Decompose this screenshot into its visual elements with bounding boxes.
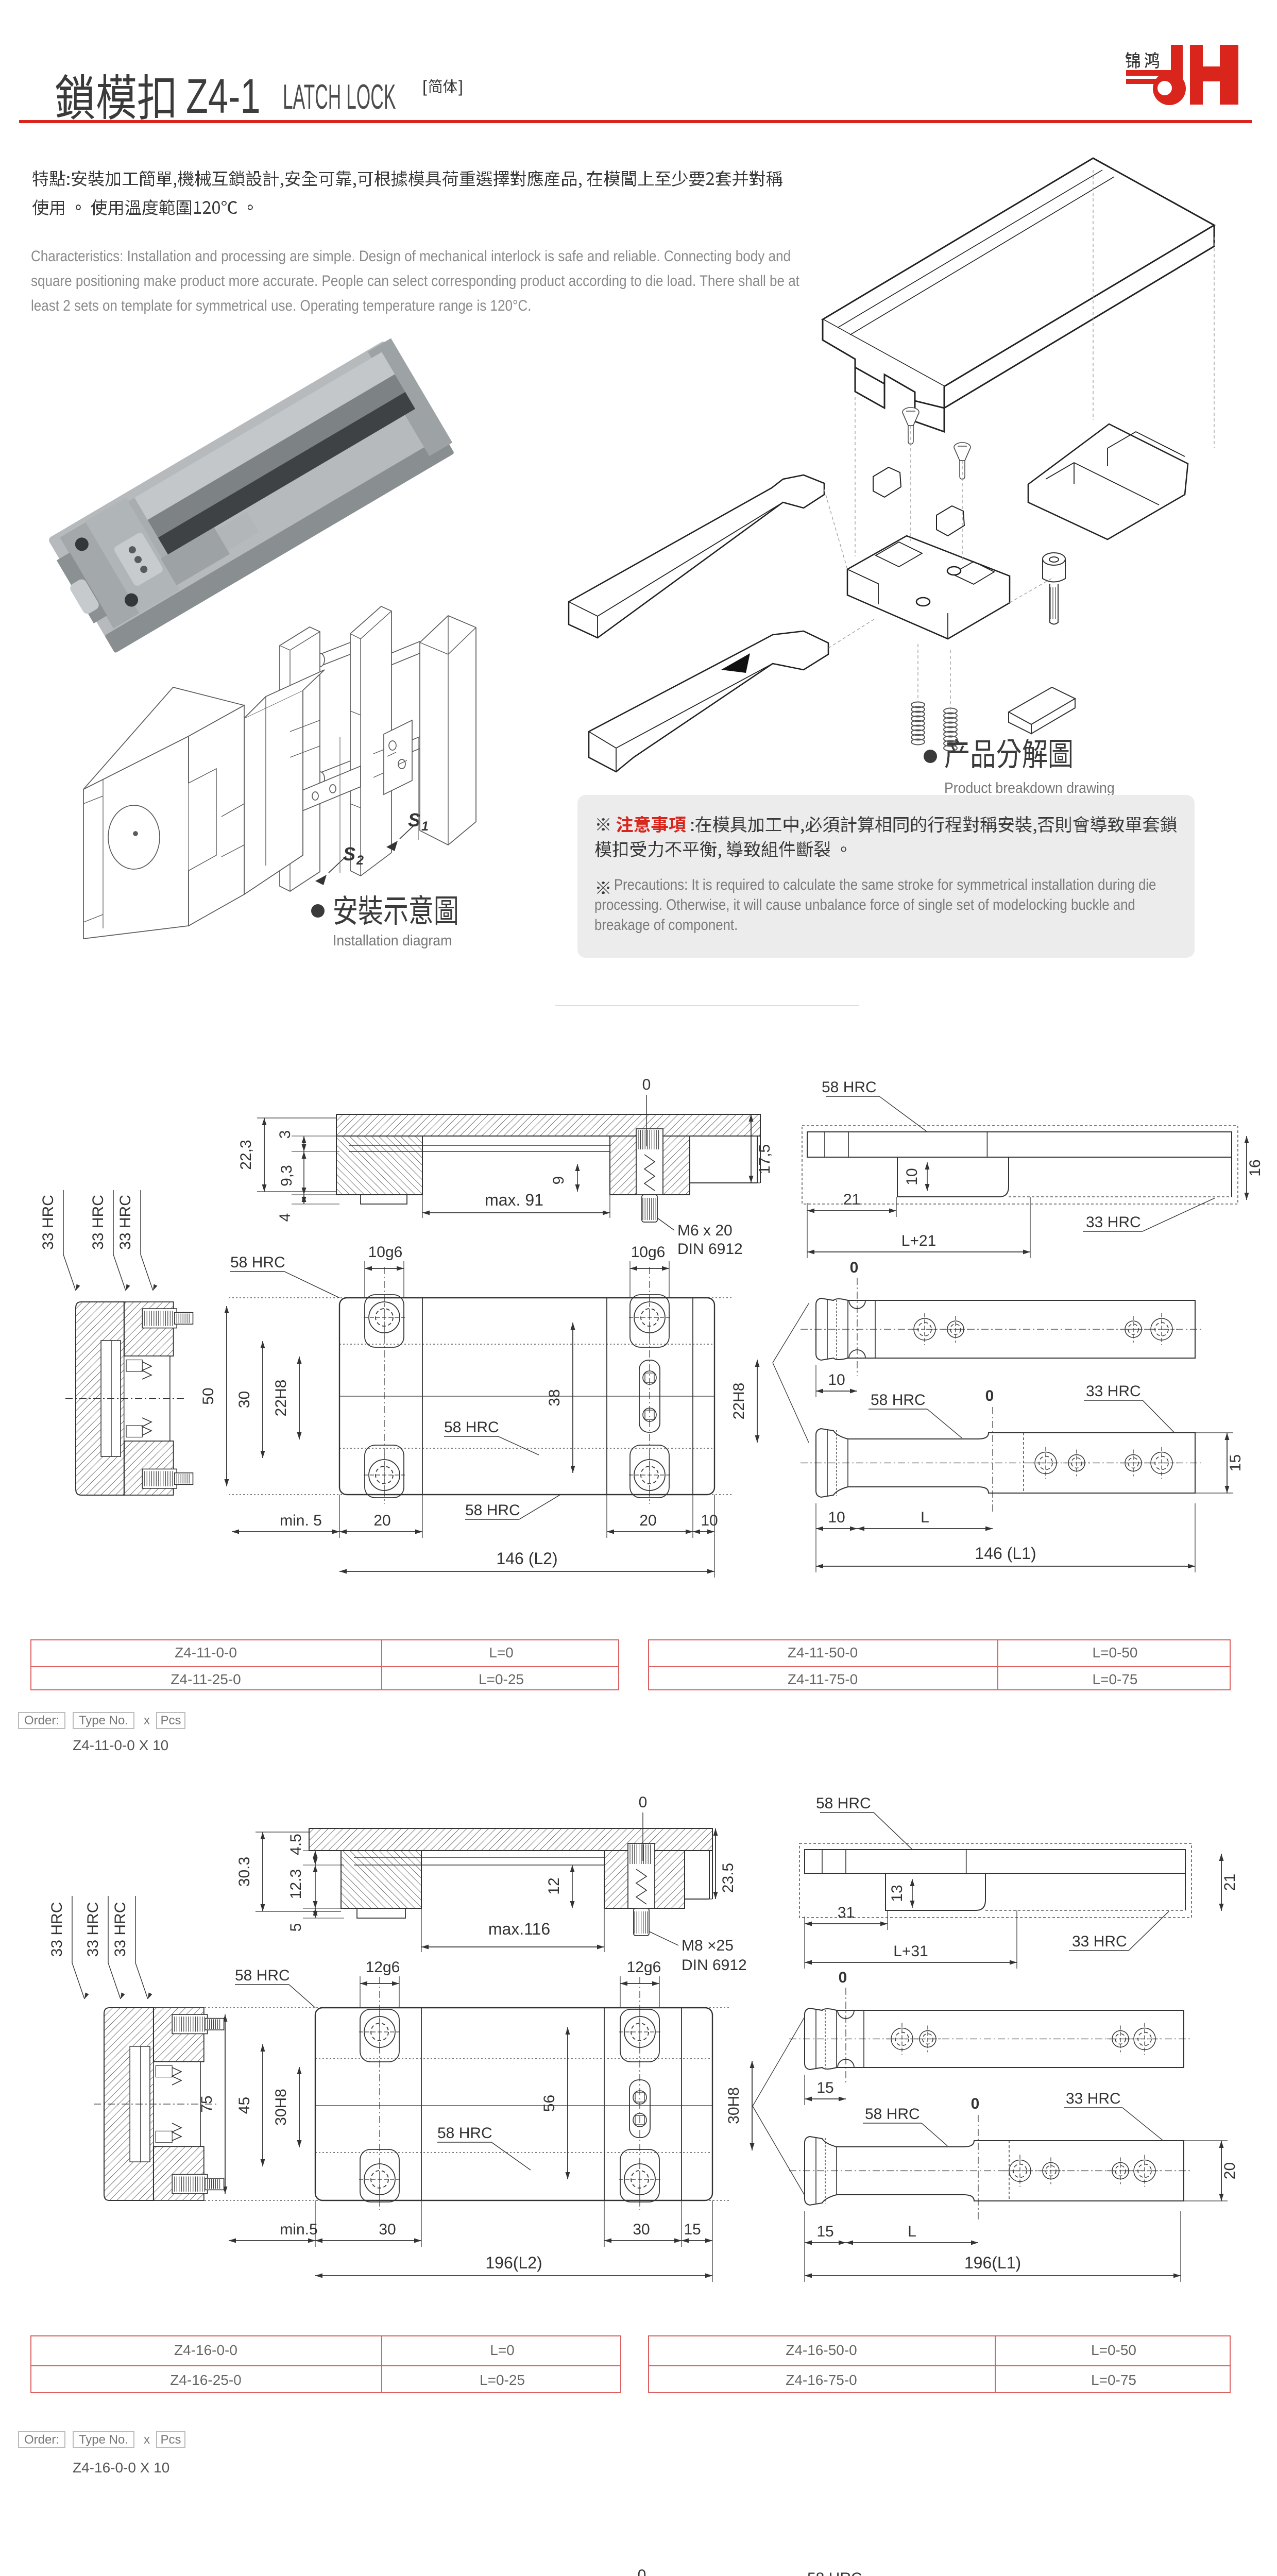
svg-text:10: 10: [828, 1371, 845, 1388]
svg-text:2: 2: [356, 853, 364, 868]
svg-text:9: 9: [550, 1176, 567, 1185]
svg-text:33 HRC: 33 HRC: [84, 1902, 101, 1957]
svg-text:33 HRC: 33 HRC: [90, 1195, 107, 1250]
svg-text:33 HRC: 33 HRC: [40, 1195, 57, 1250]
svg-text:max. 91: max. 91: [485, 1191, 543, 1209]
svg-text:max.116: max.116: [488, 1920, 550, 1938]
svg-text:10g6: 10g6: [631, 1244, 666, 1261]
svg-text:L: L: [908, 2223, 916, 2240]
svg-text:22H8: 22H8: [730, 1383, 747, 1420]
svg-text:S: S: [343, 843, 355, 865]
svg-text:12g6: 12g6: [366, 1959, 400, 1976]
svg-text:15: 15: [816, 2223, 833, 2240]
svg-text:9,3: 9,3: [278, 1165, 295, 1187]
svg-text:10g6: 10g6: [368, 1244, 403, 1261]
svg-text:38: 38: [546, 1389, 563, 1406]
svg-text:0: 0: [638, 2567, 646, 2576]
svg-text:13: 13: [889, 1885, 906, 1902]
svg-text:0: 0: [850, 1259, 859, 1276]
svg-text:[: [: [422, 77, 427, 96]
svg-text:10: 10: [701, 1512, 718, 1529]
svg-text:4: 4: [277, 1213, 294, 1222]
svg-text:15: 15: [816, 2079, 833, 2096]
svg-text:M8 ×25: M8 ×25: [682, 1937, 734, 1954]
svg-text:33 HRC: 33 HRC: [1086, 1214, 1141, 1231]
svg-text:20: 20: [1221, 2162, 1238, 2179]
svg-text:58 HRC: 58 HRC: [822, 1079, 877, 1096]
svg-text:30: 30: [379, 2221, 396, 2238]
svg-text:20: 20: [639, 1512, 656, 1529]
svg-text:33 HRC: 33 HRC: [1072, 1933, 1127, 1950]
svg-text:58 HRC: 58 HRC: [235, 1967, 290, 1984]
svg-text:L: L: [921, 1509, 929, 1526]
svg-text:23.5: 23.5: [720, 1863, 737, 1893]
svg-text:0: 0: [639, 1794, 648, 1811]
svg-text:33 HRC: 33 HRC: [117, 1195, 134, 1250]
svg-text:58 HRC: 58 HRC: [437, 2125, 492, 2142]
svg-text:21: 21: [1221, 1874, 1238, 1891]
svg-text:196(L1): 196(L1): [964, 2253, 1021, 2272]
svg-text:15: 15: [684, 2221, 701, 2238]
svg-text:0: 0: [839, 1969, 847, 1986]
svg-text:min.5: min.5: [280, 2221, 317, 2238]
svg-text:58 HRC: 58 HRC: [816, 1795, 871, 1812]
svg-text:12: 12: [546, 1877, 563, 1894]
svg-text:15: 15: [1227, 1454, 1244, 1471]
svg-text:75: 75: [198, 2095, 215, 2112]
svg-text:16: 16: [1247, 1159, 1264, 1176]
svg-text:58 HRC: 58 HRC: [871, 1392, 926, 1409]
svg-text:33 HRC: 33 HRC: [1066, 2090, 1121, 2107]
svg-text:10: 10: [828, 1509, 845, 1526]
svg-text:5: 5: [287, 1923, 304, 1932]
svg-text:30H8: 30H8: [725, 2087, 742, 2124]
svg-text:31: 31: [838, 1904, 855, 1921]
svg-text:22H8: 22H8: [273, 1380, 290, 1417]
svg-text:S: S: [408, 809, 420, 831]
svg-text:50: 50: [200, 1387, 217, 1404]
svg-text:L+21: L+21: [901, 1232, 937, 1249]
svg-text:58 HRC: 58 HRC: [865, 2106, 920, 2123]
svg-text:56: 56: [541, 2095, 558, 2112]
svg-text:12g6: 12g6: [627, 1959, 661, 1976]
svg-text:33 HRC: 33 HRC: [112, 1902, 129, 1957]
svg-text:146 (L2): 146 (L2): [496, 1549, 557, 1568]
svg-text:M6 x 20: M6 x 20: [677, 1222, 733, 1239]
svg-text:DIN 6912: DIN 6912: [682, 1957, 747, 1974]
svg-text:30: 30: [633, 2221, 650, 2238]
svg-text:58 HRC: 58 HRC: [444, 1419, 499, 1436]
svg-text:]: ]: [458, 77, 463, 96]
svg-text:30H8: 30H8: [273, 2089, 290, 2126]
svg-text:22,3: 22,3: [237, 1140, 254, 1170]
svg-text:17,5: 17,5: [756, 1144, 773, 1174]
svg-text:196(L2): 196(L2): [485, 2253, 542, 2272]
svg-text:1: 1: [421, 819, 429, 834]
svg-text:30.3: 30.3: [236, 1857, 253, 1887]
svg-text:58 HRC: 58 HRC: [230, 1254, 285, 1271]
svg-text:30: 30: [236, 1391, 253, 1408]
svg-text:0: 0: [642, 1076, 651, 1093]
svg-text:10: 10: [904, 1168, 921, 1185]
svg-text:20: 20: [373, 1512, 390, 1529]
svg-text:146 (L1): 146 (L1): [975, 1544, 1036, 1563]
svg-text:33 HRC: 33 HRC: [1086, 1383, 1141, 1400]
svg-text:0: 0: [971, 2095, 980, 2112]
svg-text:0: 0: [985, 1387, 994, 1404]
svg-text:12.3: 12.3: [287, 1869, 304, 1899]
svg-text:21: 21: [843, 1191, 860, 1208]
svg-text:33 HRC: 33 HRC: [48, 1902, 65, 1957]
svg-text:58 HRC: 58 HRC: [465, 1502, 520, 1519]
svg-text:DIN 6912: DIN 6912: [677, 1241, 743, 1258]
svg-text:4.5: 4.5: [287, 1834, 304, 1855]
svg-text:45: 45: [236, 2097, 253, 2114]
svg-text:3: 3: [277, 1130, 294, 1139]
svg-text:58 HRC: 58 HRC: [807, 2570, 862, 2576]
svg-text:min. 5: min. 5: [280, 1512, 322, 1529]
svg-text:L+31: L+31: [893, 1943, 928, 1960]
